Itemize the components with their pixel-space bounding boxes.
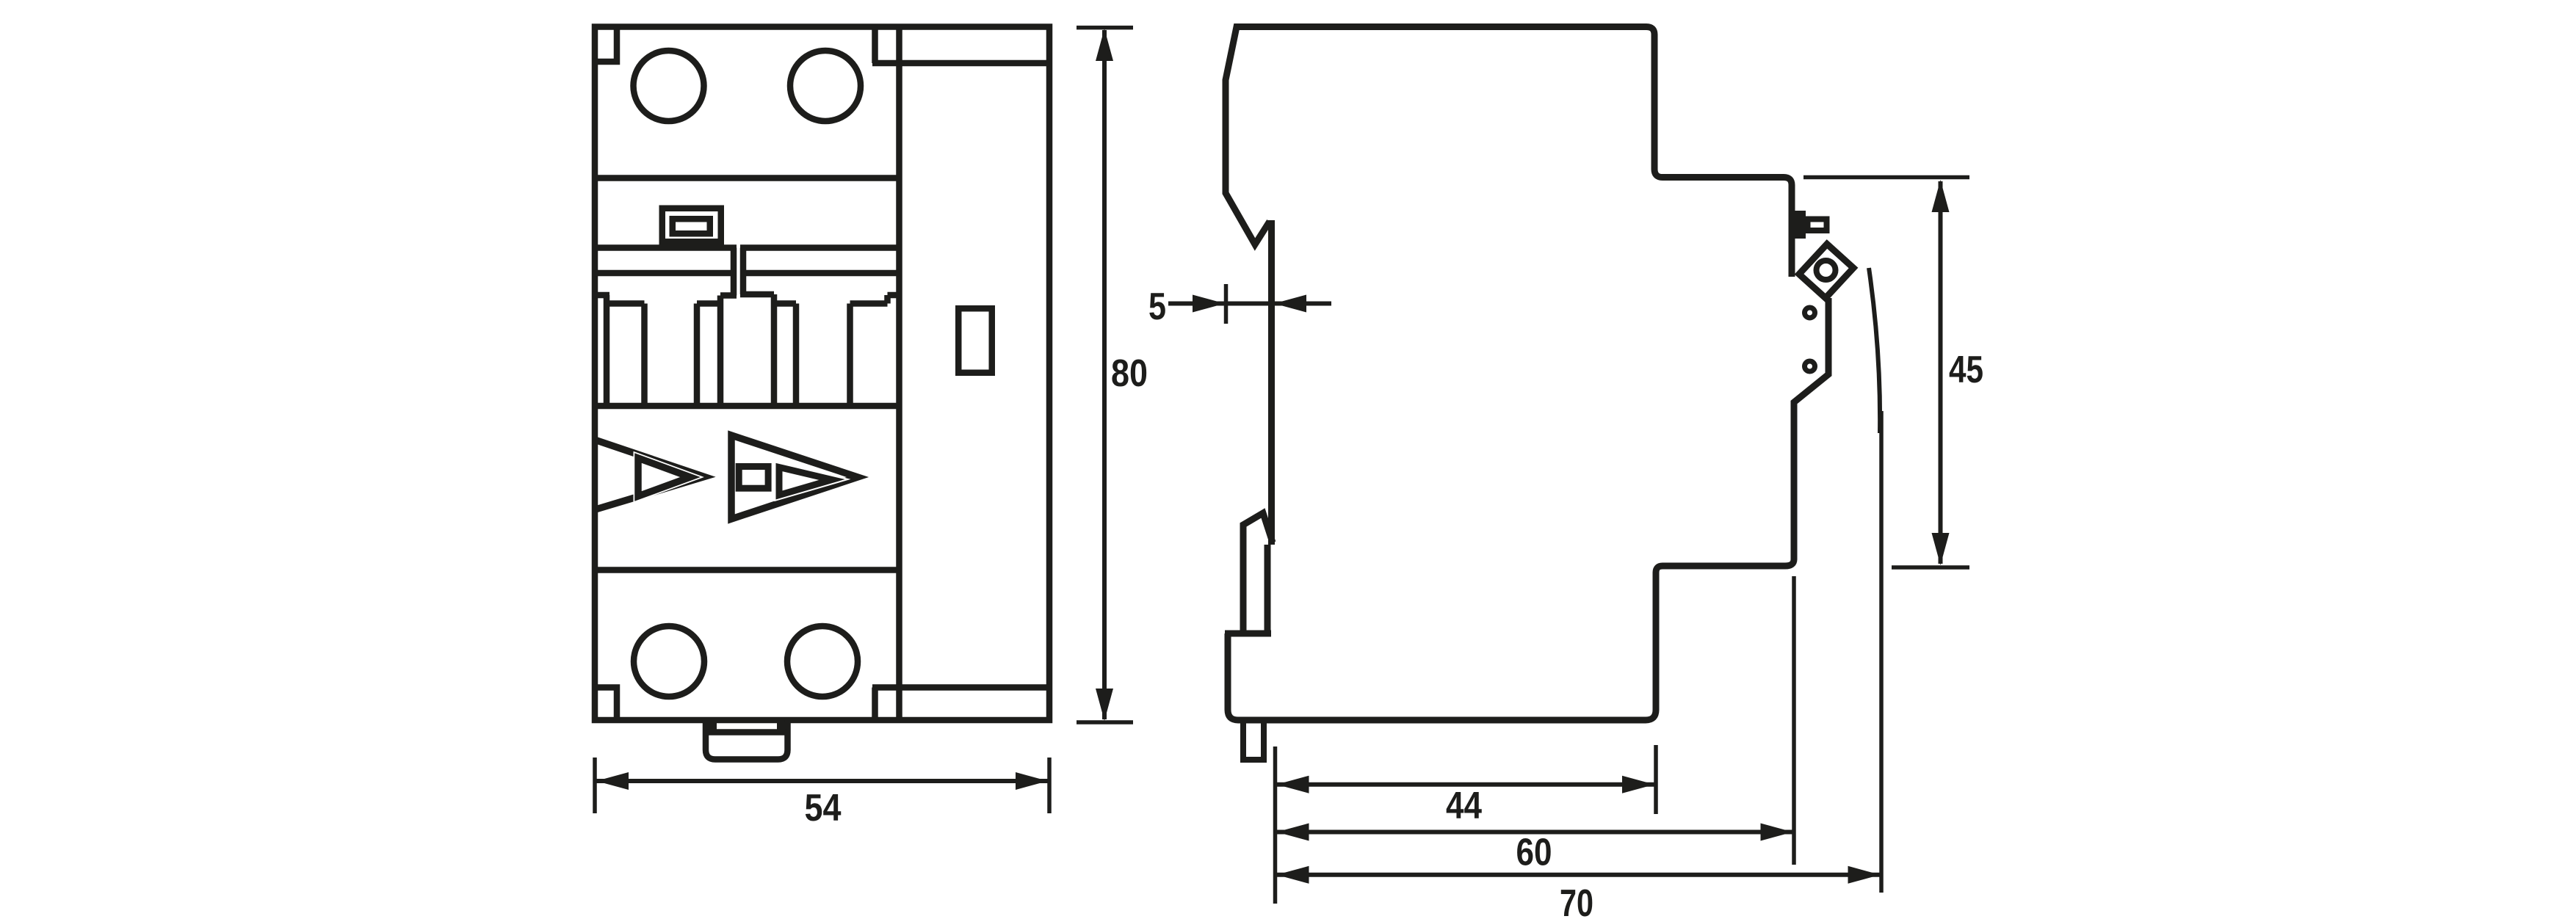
- svg-text:70: 70: [1560, 882, 1593, 919]
- svg-text:45: 45: [1949, 349, 1983, 391]
- svg-text:80: 80: [1111, 352, 1148, 395]
- svg-text:54: 54: [805, 787, 842, 829]
- svg-text:60: 60: [1516, 832, 1552, 874]
- svg-text:5: 5: [1148, 286, 1166, 328]
- svg-text:44: 44: [1446, 785, 1482, 827]
